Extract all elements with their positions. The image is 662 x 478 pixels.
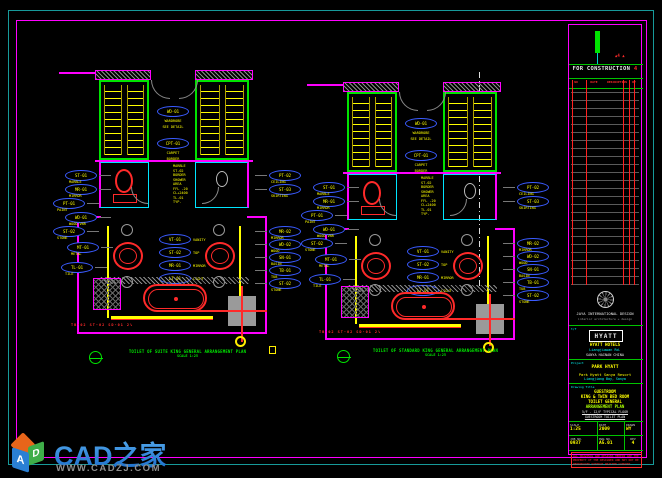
- door-swing: [151, 80, 170, 99]
- hanger-hatch: [200, 85, 220, 155]
- client-line2: Liangjiawan Rd.: [569, 348, 641, 352]
- status-text: FOR CONSTRUCTION: [572, 66, 630, 72]
- leader-line: [87, 203, 99, 204]
- threshold: [359, 324, 461, 328]
- leader-line: [99, 175, 111, 176]
- closet-right: [195, 80, 249, 160]
- door-swing: [399, 92, 418, 111]
- stool: [369, 234, 381, 246]
- leader-line: [95, 267, 107, 268]
- leader-line: [99, 189, 111, 190]
- leader-line: [503, 243, 515, 244]
- tub-drain: [422, 305, 426, 309]
- bottom-note: TB-02 ST-02 SD-01 2%: [319, 330, 469, 335]
- leader-line: [255, 231, 267, 232]
- section-line: [489, 294, 491, 346]
- closet-right: [443, 92, 497, 172]
- firm-name: JAYA INTERNATIONAL DESIGN: [569, 311, 641, 316]
- room-tag-caption: WARDROBE: [413, 131, 430, 135]
- room-tag: WD-01: [157, 106, 189, 117]
- basin-bowl: [367, 258, 385, 274]
- leader-line: [347, 201, 359, 202]
- finish-tag-caption: STONE: [271, 288, 282, 292]
- scale-bar-symbol: [595, 31, 600, 53]
- firm-logo: [597, 291, 614, 308]
- leader-line: [503, 201, 515, 202]
- job-value: 0937: [570, 441, 596, 446]
- tub-surround: [347, 285, 497, 292]
- finish-tag: VT-01: [159, 234, 191, 245]
- leader-line: [255, 283, 267, 284]
- closet-left: [99, 80, 149, 160]
- wall-segment: [307, 84, 343, 86]
- stool: [121, 224, 133, 236]
- rev-table-rule: [634, 80, 635, 285]
- room-tag-caption: SEE DETAIL: [162, 125, 183, 129]
- closet-left: [347, 92, 397, 172]
- scale-value: 1:25: [570, 427, 596, 432]
- finish-tag-caption: METAL: [319, 264, 330, 268]
- leader-line: [335, 215, 347, 216]
- tub-surround: [99, 277, 249, 284]
- section-line: [189, 310, 267, 312]
- finish-tag-caption: TILE: [65, 272, 73, 276]
- stool: [213, 224, 225, 236]
- leader-line: [503, 187, 515, 188]
- leader-line: [101, 247, 113, 248]
- status-rev: 4: [634, 66, 638, 72]
- finish-tag-caption: MIRROR: [193, 264, 206, 268]
- room-tag-caption: CARPET: [415, 163, 428, 167]
- leader-line: [335, 243, 347, 244]
- cadzj-cube-logo: D A: [10, 436, 48, 474]
- shaft-box: [341, 286, 369, 318]
- cube-face-left: A: [12, 447, 29, 473]
- detail-circle: [89, 351, 102, 364]
- bathtub: [143, 284, 207, 312]
- leader-line: [503, 269, 515, 270]
- plan-standard-king: WD-01 WARDROBE SEE DETAIL CPT-01 CARPET …: [303, 78, 535, 380]
- room-tag-caption: SEE DETAIL: [410, 137, 431, 141]
- leader-line: [255, 257, 267, 258]
- wall-segment: [59, 72, 95, 74]
- leader-line: [503, 282, 515, 283]
- finish-tag-caption: TOP: [193, 251, 199, 255]
- plan-title: TOILET OF STANDARD KING GENERAL ARRANGEM…: [353, 348, 518, 358]
- leader-line: [349, 259, 361, 260]
- leader-line: [99, 217, 111, 218]
- hanger-hatch: [473, 97, 493, 167]
- drawn-cell: DRAWN WY: [625, 422, 641, 435]
- detail-circle: [337, 350, 350, 363]
- job-cell: JOB NO. 0937: [569, 436, 598, 450]
- project-line3: Liangjiang Bay, Sanya: [569, 377, 641, 381]
- rev-value: 4: [626, 441, 640, 446]
- basin-bowl: [211, 248, 229, 264]
- toilet: [216, 171, 228, 187]
- room-tag-caption: CARPET: [167, 151, 180, 155]
- revision-triangle: ▲4 ▲: [615, 53, 625, 58]
- notice-line: REPRODUCED WITHOUT WRITTEN CONSENT.: [573, 462, 640, 466]
- hanger-hatch: [448, 97, 468, 167]
- wall-segment: [443, 82, 501, 92]
- date-value: 2009: [599, 427, 623, 432]
- rev-table-rule: [586, 80, 587, 285]
- bottom-note: TB-02 ST-02 SD-01 2%: [71, 323, 221, 328]
- scale-cell: SCALE 1:25: [569, 422, 598, 435]
- finish-tag-caption: VANITY: [441, 250, 454, 254]
- rev-table-rule: [623, 80, 624, 285]
- status-banner: FOR CONSTRUCTION 4: [569, 66, 641, 72]
- vanity-basin-left: [361, 252, 391, 280]
- date-cell: DATE 2009: [598, 422, 625, 435]
- stool: [461, 234, 473, 246]
- toilet: [464, 183, 476, 199]
- finish-tag-caption: STONE: [305, 248, 316, 252]
- finish-tag-caption: VANITY: [193, 238, 206, 242]
- room-tag: CPT-01: [157, 138, 189, 149]
- cad-sheet: WD-01 WARDROBE SEE DETAIL CPT-01 CARPET …: [0, 0, 662, 478]
- bathtub: [391, 292, 455, 320]
- shaft-box: [93, 278, 121, 310]
- finish-tag-caption: SKIRTING: [271, 194, 288, 198]
- revision-header: NO DATE DESCRIPTION BY: [569, 80, 641, 84]
- leader-line: [503, 295, 515, 296]
- finish-tag-caption: STONE: [519, 300, 530, 304]
- finish-tag: VT-01: [407, 246, 439, 257]
- client-line1: HYATT HOTELS: [569, 342, 641, 347]
- finish-tag: MR-01: [159, 260, 191, 271]
- leader-line: [347, 229, 359, 230]
- info-row-2: JOB NO. 0937 DWG NO. A5.01 REV 4: [569, 436, 641, 450]
- plan-scale-text: SCALE 1:25: [105, 354, 270, 359]
- rev-table-rule: [629, 80, 630, 285]
- firm-subtitle: interior architecture + design: [569, 317, 641, 321]
- rev-cell: REV 4: [625, 436, 641, 450]
- room-tag-caption: WARDROBE: [165, 119, 182, 123]
- threshold: [111, 316, 213, 320]
- leader-line: [255, 244, 267, 245]
- drawing-line6: GUESTROOM TOILET PLAN: [569, 415, 641, 419]
- note-line: TYP.: [421, 212, 455, 217]
- vanity-basin-right: [205, 242, 235, 270]
- info-row-1: SCALE 1:25 DATE 2009 DRAWN WY: [569, 422, 641, 435]
- drawn-value: WY: [626, 427, 640, 432]
- copyright-notice: ALL DRAWINGS AND DESIGNS HEREIN ARE THE …: [571, 452, 642, 468]
- room-tag: CPT-01: [405, 150, 437, 161]
- hanger-hatch: [104, 85, 122, 155]
- title-block: ▲4 ▲ FOR CONSTRUCTION 4 NO DATE DESCRIPT…: [568, 24, 642, 455]
- note-line: TYP.: [173, 200, 207, 205]
- drawing-line5: 5/F - 12/F TYPICAL FLOOR: [569, 410, 641, 414]
- basin-bowl: [119, 248, 137, 264]
- leader-line: [87, 231, 99, 232]
- hanger-hatch: [352, 97, 370, 167]
- rev-col-desc: DESCRIPTION: [605, 80, 629, 84]
- detail-circle-line: [90, 358, 103, 359]
- finish-tag-caption: METAL: [71, 252, 82, 256]
- hanger-hatch: [127, 85, 145, 155]
- finish-tag-caption: TILE: [313, 284, 321, 288]
- wall-segment: [325, 338, 515, 340]
- leader-line: [503, 256, 515, 257]
- vanity-basin-right: [453, 252, 483, 280]
- plan-title: TOILET OF SUITE KING GENERAL ARRANGEMENT…: [105, 349, 270, 359]
- dwg-cell: DWG NO. A5.01: [598, 436, 625, 450]
- wall-segment: [247, 216, 267, 218]
- drawing-line4: ARRANGEMENT PLAN: [569, 404, 641, 409]
- room-tag: WD-01: [405, 118, 437, 129]
- detail-marker: [235, 336, 246, 347]
- finish-tag-caption: TOP: [441, 263, 447, 267]
- leader-line: [255, 189, 267, 190]
- detail-circle-line: [338, 357, 351, 358]
- watermark: D A CAD之家 WWW.CADZJ.COM: [10, 434, 190, 476]
- wall-segment: [495, 228, 515, 230]
- project-name: PARK HYATT: [569, 365, 641, 370]
- wall-segment: [343, 82, 399, 92]
- rev-table-rule: [572, 80, 573, 285]
- basin-bowl: [459, 258, 477, 274]
- hanger-hatch: [225, 85, 245, 155]
- client-line3: SANYA HAINAN CHINA: [569, 353, 641, 357]
- finish-tag: ST-02: [407, 259, 439, 270]
- leader-line: [255, 175, 267, 176]
- leader-line: [255, 270, 267, 271]
- vanity-basin-left: [113, 242, 143, 270]
- finish-tag: ST-02: [159, 247, 191, 258]
- cube-face-right: D: [28, 441, 44, 466]
- leader-line: [343, 279, 355, 280]
- finish-tag-caption: MIRROR: [441, 276, 454, 280]
- wall-segment: [95, 70, 151, 80]
- section-line: [437, 318, 515, 320]
- wall-segment: [77, 332, 267, 334]
- note-block: MARBLEST-02BORDERSHOWERAREAFFL -20CL+240…: [421, 176, 455, 217]
- finish-tag-caption: SKIRTING: [519, 206, 536, 210]
- finish-tag-caption: STONE: [57, 236, 68, 240]
- revision-tick: [269, 346, 276, 354]
- dwg-number: A5.01: [599, 441, 623, 446]
- cadzj-url: WWW.CADZJ.COM: [56, 463, 161, 474]
- hanger-hatch: [375, 97, 393, 167]
- tub-drain: [174, 297, 178, 301]
- leader-line: [347, 187, 359, 188]
- note-block: MARBLEST-02BORDERSHOWERAREAFFL -20CL+240…: [173, 164, 207, 205]
- wall-segment: [195, 70, 253, 80]
- client-brand: HYATT: [594, 333, 617, 340]
- plan-suite-king: WD-01 WARDROBE SEE DETAIL CPT-01 CARPET …: [55, 66, 287, 368]
- finish-tag: MR-01: [407, 272, 439, 283]
- section-line: [241, 286, 243, 342]
- client-tel-label: t/f: [571, 327, 576, 331]
- client-brand-box: HYATT: [589, 330, 623, 342]
- plan-scale-text: SCALE 1:25: [353, 353, 518, 358]
